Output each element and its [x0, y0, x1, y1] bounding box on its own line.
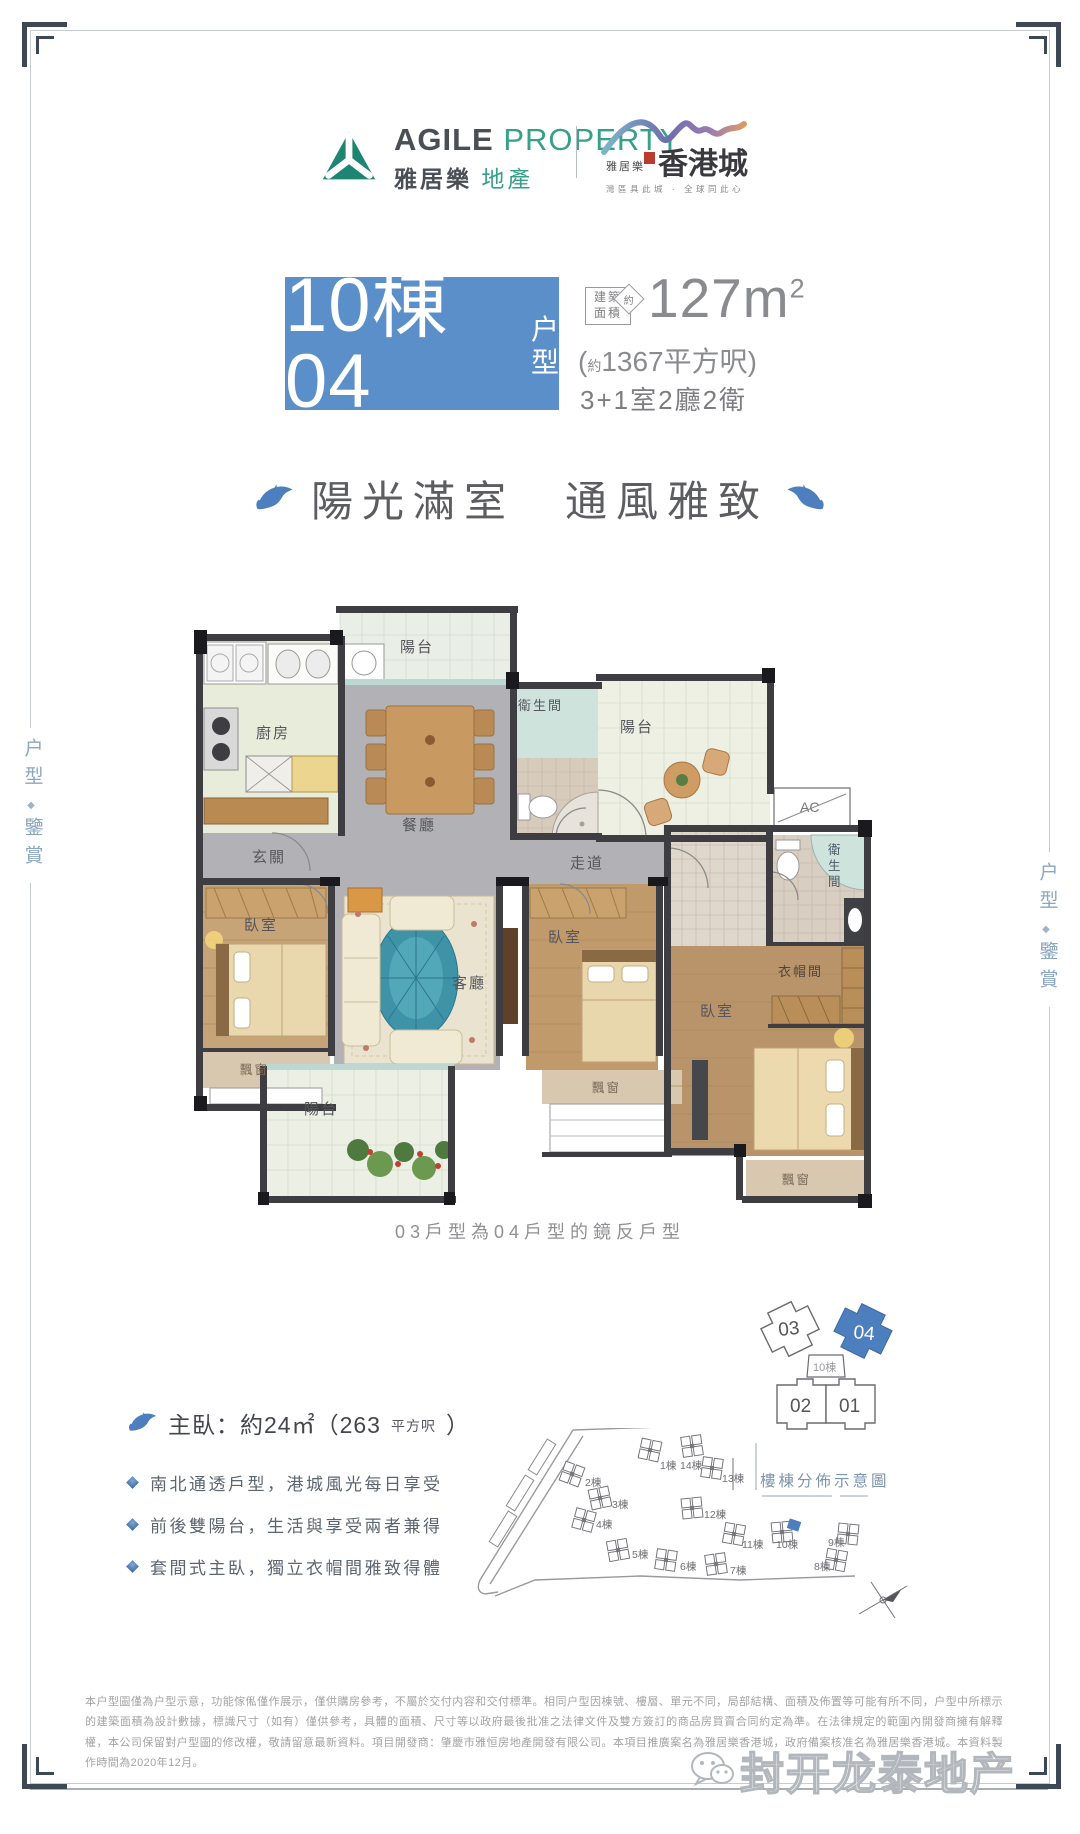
toilet-icon — [518, 794, 530, 820]
svg-text:8棟: 8棟 — [814, 1560, 831, 1573]
side-label-left: 户型 ◆ 鑒賞 — [17, 728, 47, 883]
site-boundary — [478, 1428, 855, 1596]
feature-item: 前後雙陽台，生活與享受兩者兼得 — [128, 1512, 443, 1537]
label-balcony-right: 陽台 — [620, 719, 654, 736]
plan-caption: 03戶型為04戶型的鏡反戶型 — [0, 1218, 1080, 1244]
tv-panel-icon — [692, 1060, 708, 1140]
left-bedroom-furniture — [205, 888, 326, 1036]
diamond-bullet-icon — [126, 1560, 139, 1573]
unit-03-shape: 03 — [756, 1296, 824, 1362]
label-wardrobe: 衣帽間 — [778, 964, 823, 979]
closet-icon — [842, 948, 866, 1024]
svg-text:間: 間 — [828, 875, 841, 889]
label-bay-mid: 飄窗 — [592, 1081, 621, 1095]
master-area-text: 主臥：約24㎡（263 — [168, 1406, 381, 1440]
agile-cn-light: 地產 — [481, 166, 533, 192]
feature-text: 南北通透戶型，港城風光每日享受 — [150, 1470, 443, 1495]
unit-03-label: 03 — [777, 1318, 800, 1341]
label-bay-master: 飄窗 — [782, 1173, 811, 1187]
unit-key-diagram: 03 04 10棟 02 01 — [735, 1293, 925, 1433]
area-value: 127m2 — [648, 266, 806, 330]
watermark: 封开龙泰地产 — [688, 1738, 1016, 1802]
diamond-bullet-icon — [126, 1518, 139, 1531]
frame-corner-icon — [22, 1744, 67, 1789]
agile-en-bold: AGILE — [394, 122, 494, 157]
seal-icon — [644, 152, 655, 164]
frame-corner-icon — [1016, 1744, 1061, 1789]
label-living: 客廳 — [452, 974, 486, 992]
side-label-text: 户型 — [19, 738, 46, 794]
feature-item: 南北通透戶型，港城風光每日享受 — [128, 1470, 443, 1495]
closet-rack-icon — [772, 996, 840, 1024]
diamond-separator-icon: ◆ — [1042, 924, 1052, 935]
unit-04-label: 04 — [852, 1322, 876, 1345]
svg-text:11棟: 11棟 — [742, 1538, 764, 1551]
side-label-right: 户型 ◆ 鑒賞 — [1032, 852, 1062, 1007]
washer-icon — [344, 644, 384, 682]
building-label: 10棟 — [813, 1360, 836, 1374]
room-spec: 3+1室2廳2衛 — [580, 380, 747, 417]
side-label-text: 鑒賞 — [19, 817, 46, 873]
svg-text:5棟: 5棟 — [632, 1548, 649, 1561]
dining-table-icon — [366, 706, 494, 814]
label-balcony-top: 陽台 — [400, 639, 434, 656]
unit-02-01-shapes: 02 01 — [777, 1379, 875, 1429]
frame-corner-icon — [22, 22, 67, 67]
agile-logo-icon — [318, 127, 380, 189]
svg-text:13棟: 13棟 — [722, 1472, 745, 1485]
siteplan-title: 樓棟分佈示意圖 — [760, 1471, 890, 1490]
svg-text:2棟: 2棟 — [585, 1476, 602, 1489]
svg-text:9棟: 9棟 — [828, 1536, 845, 1549]
feature-text: 前後雙陽台，生活與享受兩者兼得 — [150, 1512, 443, 1537]
room-balcony-right — [598, 678, 770, 838]
ac-shelf: AC — [774, 788, 850, 826]
diamond-bullet-icon — [126, 1476, 139, 1489]
svg-text:12棟: 12棟 — [704, 1508, 727, 1521]
project-logo: 雅居樂 香港城 灣區具此城 · 全球同此心 — [598, 100, 748, 205]
unit-number: 10棟04 — [285, 268, 523, 420]
label-dining: 餐廳 — [402, 816, 436, 834]
building-clusters — [559, 1435, 859, 1576]
svg-text:衛: 衛 — [828, 843, 841, 857]
unit-02-label: 02 — [790, 1396, 811, 1417]
project-tagline: 灣區具此城 · 全球同此心 — [606, 184, 744, 194]
master-bedroom-info: 主臥：約24㎡（263平方呎） — [128, 1406, 470, 1440]
sideboard-icon — [204, 798, 328, 824]
dolphin-icon — [785, 483, 825, 515]
sofa-icon — [342, 914, 380, 1046]
svg-text:14棟: 14棟 — [680, 1459, 703, 1472]
label-corridor: 走道 — [570, 855, 604, 872]
ac-label: AC — [800, 799, 819, 815]
floorplan: AC — [152, 548, 924, 1212]
label-bed-mid: 臥室 — [548, 929, 582, 946]
label-bay-left: 飄窗 — [240, 1063, 269, 1077]
svg-text:7棟: 7棟 — [730, 1564, 747, 1577]
slab-buildings — [489, 1439, 556, 1547]
bed-icon — [216, 944, 326, 1036]
dolphin-icon — [128, 1411, 158, 1435]
dolphin-icon — [255, 483, 295, 515]
slogan-right: 通風雅致 — [565, 468, 769, 529]
svg-text:生: 生 — [828, 859, 841, 873]
svg-text:10棟: 10棟 — [776, 1538, 799, 1551]
window-strip — [266, 1064, 454, 1070]
svg-text:6棟: 6棟 — [680, 1560, 697, 1573]
feature-text: 套間式主臥，獨立衣帽間雅致得體 — [150, 1554, 443, 1579]
unit-title-box: 10棟04 户 型 — [285, 277, 559, 410]
side-label-text: 户型 — [1034, 862, 1061, 918]
watermark-text: 封开龙泰地产 — [740, 1738, 1016, 1802]
armchair-icon — [390, 1030, 462, 1064]
frame-corner-icon — [1016, 22, 1061, 67]
label-bed-left: 臥室 — [244, 917, 278, 934]
side-label-text: 鑒賞 — [1034, 941, 1061, 997]
area-sqft: (約1367平方呎) — [578, 340, 757, 380]
label-bed-master: 臥室 — [700, 1003, 734, 1020]
unit-01-label: 01 — [839, 1396, 860, 1417]
feature-item: 套間式主臥，獨立衣帽間雅致得體 — [128, 1554, 443, 1579]
project-name: 香港城 — [658, 148, 748, 181]
label-entry: 玄關 — [252, 849, 286, 866]
feature-list: 南北通透戶型，港城風光每日享受 前後雙陽台，生活與享受兩者兼得 套間式主臥，獨立… — [128, 1470, 443, 1579]
wechat-icon — [688, 1748, 736, 1792]
toilet-icon — [776, 840, 800, 850]
bed-icon — [754, 1048, 864, 1150]
bath2-vertical-label: 衛 生 間 — [828, 843, 841, 889]
slogan-row: 陽光滿室 通風雅致 — [0, 468, 1080, 529]
svg-text:1棟: 1棟 — [660, 1459, 677, 1472]
svg-text:4棟: 4棟 — [596, 1518, 613, 1531]
window-strip — [340, 679, 510, 685]
logo-divider — [576, 126, 577, 178]
cabinet-icon — [292, 756, 338, 792]
unit-type-label: 户 型 — [531, 308, 559, 378]
label-balcony-bottom: 陽台 — [304, 1101, 338, 1118]
slogan-left: 陽光滿室 — [311, 468, 515, 529]
project-brand-small: 雅居樂 — [606, 159, 645, 173]
agile-cn-bold: 雅居樂 — [394, 166, 472, 192]
side-table-icon — [348, 888, 382, 912]
compass-icon — [859, 1582, 907, 1618]
lamp-icon — [834, 1028, 854, 1048]
svg-text:3棟: 3棟 — [612, 1498, 629, 1511]
armchair-icon — [390, 896, 454, 930]
label-bath1: 衛生間 — [518, 698, 563, 713]
siteplan: 樓棟分佈示意圖 1棟 14棟 2棟 13棟 3棟 4棟 12棟 11棟 10棟 … — [440, 1428, 920, 1693]
diamond-separator-icon: ◆ — [27, 800, 37, 811]
label-kitchen: 廚房 — [256, 724, 290, 742]
unit-04-shape: 04 — [829, 1298, 897, 1364]
window-icon — [550, 1104, 666, 1152]
